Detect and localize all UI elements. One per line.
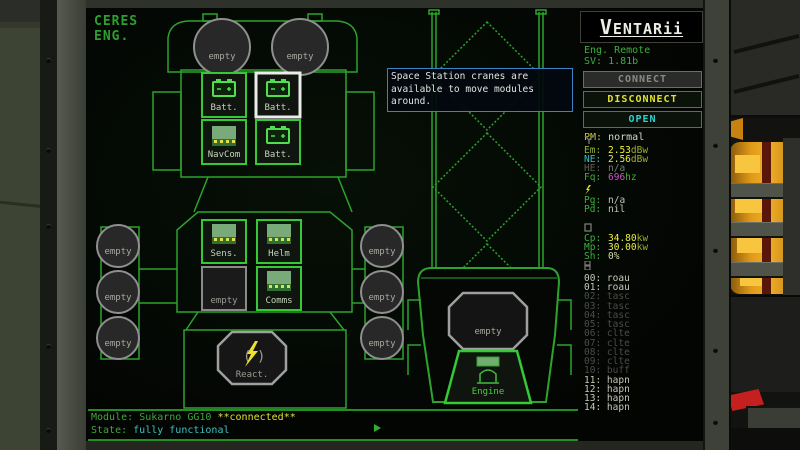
hull-neck (194, 177, 352, 212)
empty-socket[interactable] (97, 317, 139, 359)
rivet (713, 420, 718, 425)
sh-value: 0% (608, 251, 619, 262)
hull-neck-lower (186, 312, 344, 330)
rivet (713, 143, 718, 148)
floor-shadow (727, 428, 800, 450)
empty-octagon-slot[interactable] (449, 293, 527, 349)
label-empty: empty (360, 247, 404, 257)
connected-flag: **connected** (217, 412, 295, 423)
hull-fin (408, 300, 421, 330)
empty-socket[interactable] (361, 225, 403, 267)
empty-socket[interactable] (272, 19, 328, 75)
engine-icon-top (477, 357, 499, 366)
label-engine: Engine (462, 387, 514, 397)
wall-seam (0, 201, 44, 209)
machinery-edge (783, 138, 800, 300)
label-batt: Batt. (256, 150, 300, 160)
power-bolt-icon (584, 185, 592, 195)
crane-tooltip: Space Station cranes are available to mo… (387, 68, 573, 112)
rivet (46, 224, 51, 229)
battery-icon (267, 79, 289, 96)
machinery-panel-lower (727, 295, 800, 392)
rivet (713, 58, 718, 63)
label-helm: Helm (257, 249, 301, 259)
mast-rails (432, 12, 543, 268)
monitor-bezel-bottom (86, 441, 703, 450)
state-label: State: (91, 425, 127, 436)
rivet (713, 248, 718, 253)
vendor-logo: VENTARii (600, 15, 683, 39)
coil-highlight (735, 155, 760, 173)
sensors-chip-icon (212, 224, 236, 244)
rivet (46, 428, 51, 433)
hull-wing-left (153, 92, 181, 170)
rivet (46, 344, 51, 349)
monitor-edge-strut (703, 0, 731, 450)
connect-button[interactable]: CONNECT (583, 71, 702, 88)
helm-chip-icon (267, 224, 291, 244)
sh-label: Sh: (584, 252, 608, 261)
hull-fin (557, 300, 571, 330)
status-line1: Module: Sukarno GG10 **connected** (91, 411, 578, 424)
reactor-bracket: ) (257, 349, 265, 365)
channel-row[interactable]: 14: hapn (584, 403, 630, 412)
label-navcom: NavCom (202, 150, 246, 160)
monitor-bezel-left (57, 0, 86, 450)
battery-icon (213, 79, 235, 96)
rivet (46, 58, 51, 63)
rivet (46, 148, 51, 153)
mast-truss-diamond (433, 133, 541, 241)
label-empty: empty (360, 293, 404, 303)
hull-wing-right (346, 92, 374, 170)
label-empty: empty (196, 52, 248, 62)
channel-code: hapn (607, 402, 630, 413)
empty-socket[interactable] (97, 271, 139, 313)
machinery-panel-top (727, 0, 800, 118)
module-label: Module: (91, 412, 133, 423)
empty-socket[interactable] (361, 317, 403, 359)
vendor-logo-box: VENTARii (580, 11, 703, 43)
state-value: fully functional (133, 425, 229, 436)
hull-fin (408, 345, 421, 375)
label-empty: empty (96, 293, 140, 303)
tooltip-line2: available to move modules (391, 84, 569, 97)
pd-value: nil (608, 204, 625, 215)
empty-socket[interactable] (194, 19, 250, 75)
label-empty: empty (274, 52, 326, 62)
battery-icon (267, 126, 289, 143)
mast-cap (536, 10, 546, 14)
label-comms: Comms (257, 296, 301, 306)
fq-label: Fq: (584, 173, 608, 182)
channel-row[interactable]: 02: tasc (584, 292, 630, 301)
fq-unit: hz (625, 172, 636, 183)
status-line2: State: fully functional (91, 424, 578, 437)
label-react: React. (226, 370, 278, 380)
app-version: SV: 1.81b (584, 56, 638, 67)
open-button[interactable]: OPEN (583, 111, 702, 128)
label-empty: empty (96, 339, 140, 349)
channel-row[interactable]: 06: clte (584, 329, 630, 338)
module-name: Sukarno GG10 (139, 412, 211, 423)
mp-unit: kw (637, 242, 648, 253)
ne-unit: dBw (631, 154, 648, 165)
label-empty: empty (360, 339, 404, 349)
pod-connectors (139, 269, 365, 303)
stat-pd: Pd:nil (584, 205, 625, 214)
pm-value: normal (608, 132, 644, 143)
stat-sh: Sh:0% (584, 252, 619, 261)
capacitor-icon (584, 223, 593, 232)
label-empty: empty (202, 296, 246, 306)
stat-fq: Fq:696hz (584, 173, 637, 182)
antenna-icon (584, 135, 594, 144)
tooltip-line1: Space Station cranes are (391, 71, 569, 84)
label-batt: Batt. (202, 103, 246, 113)
empty-socket[interactable] (361, 271, 403, 313)
channel-row[interactable]: 10: buff (584, 366, 630, 375)
tooltip-line3: around. (391, 96, 569, 109)
comms-chip-icon (267, 271, 291, 291)
monitor-bezel-top (86, 0, 703, 8)
navcom-chip-icon (212, 126, 236, 146)
app-title: Eng. Remote (584, 45, 650, 56)
mast-cap (429, 10, 439, 14)
label-batt: Batt. (256, 103, 300, 113)
hull-fin (557, 345, 571, 375)
disconnect-button[interactable]: DISCONNECT (583, 91, 702, 108)
channel-list-icon (584, 261, 592, 270)
module-status-bar: Module: Sukarno GG10 **connected** State… (88, 409, 578, 441)
fq-value: 696 (608, 172, 625, 183)
channel-num: 14: (584, 402, 601, 413)
label-empty: empty (96, 247, 140, 257)
empty-socket[interactable] (97, 225, 139, 267)
rivet (713, 348, 718, 353)
lever-bracket (746, 406, 800, 430)
label-sens: Sens. (202, 249, 246, 259)
label-empty: empty (462, 327, 514, 337)
pd-label: Pd: (584, 205, 608, 214)
ship-interior-wall (0, 0, 57, 450)
